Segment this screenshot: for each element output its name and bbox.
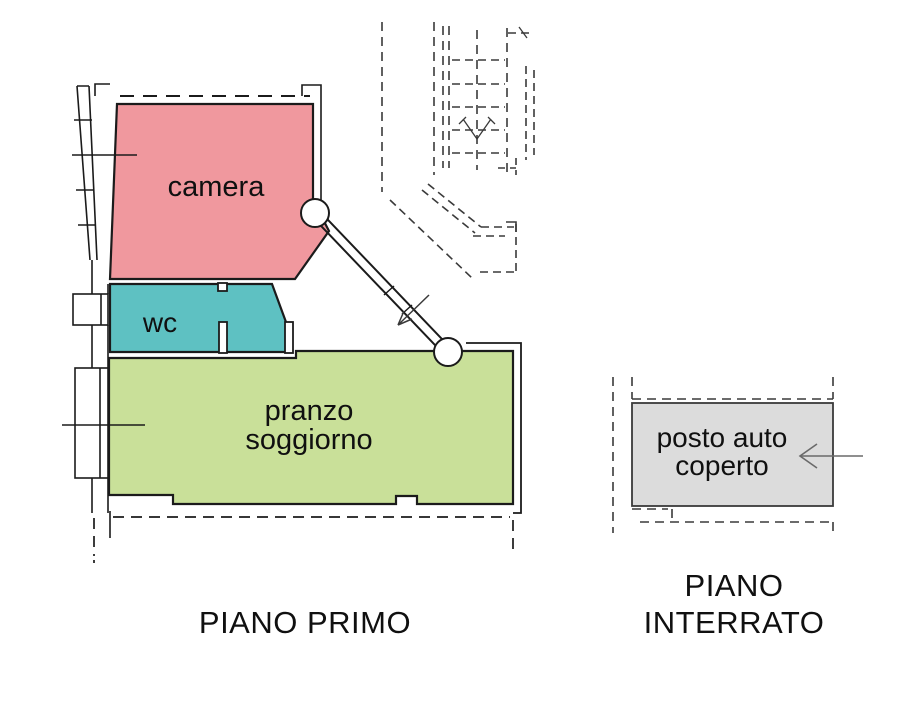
label-wc: wc xyxy=(142,307,177,338)
ramp-step-ticks xyxy=(384,286,412,314)
ramp xyxy=(313,211,452,355)
label-soggiorno: soggiorno xyxy=(245,424,372,456)
terrace-outline xyxy=(94,517,513,563)
title-piano-interrato-line2: INTERRATO xyxy=(644,605,825,640)
wc-partition-stub-left xyxy=(219,322,227,353)
column-circle-bottom xyxy=(434,338,462,366)
room-wc xyxy=(110,284,290,352)
ramp-walls xyxy=(313,211,452,355)
label-posto-auto: posto auto xyxy=(657,422,788,453)
label-coperto: coperto xyxy=(675,450,768,481)
wall-slant-lines xyxy=(77,86,97,260)
stair-direction-lines xyxy=(459,27,527,139)
landing-long-diagonal xyxy=(390,200,472,278)
label-camera: camera xyxy=(168,171,266,203)
terrace-dashed xyxy=(94,517,513,563)
stair-vertical-lines xyxy=(382,22,507,192)
staircase-dashed xyxy=(382,22,534,192)
landing-dashed xyxy=(390,184,516,278)
stair-treads xyxy=(452,60,505,153)
landing-diagonals xyxy=(422,184,481,233)
roof-corner-left xyxy=(95,84,110,96)
stair-handrail xyxy=(508,33,534,160)
title-piano-interrato-line1: PIANO xyxy=(685,568,784,603)
wc-partition-stub-right xyxy=(285,322,293,353)
title-piano-primo: PIANO PRIMO xyxy=(199,605,411,640)
floor-plan-canvas: camera wc pranzo soggiorno posto auto co… xyxy=(0,0,924,720)
window-soggiorno xyxy=(75,368,108,478)
column-circle-top xyxy=(301,199,329,227)
label-pranzo: pranzo xyxy=(265,395,354,427)
floor-plan-page: camera wc pranzo soggiorno posto auto co… xyxy=(0,0,924,720)
window-wc xyxy=(73,294,108,325)
wc-door-notch xyxy=(218,283,227,291)
stair-direction-mark xyxy=(459,27,527,139)
landing-outline xyxy=(473,224,516,272)
